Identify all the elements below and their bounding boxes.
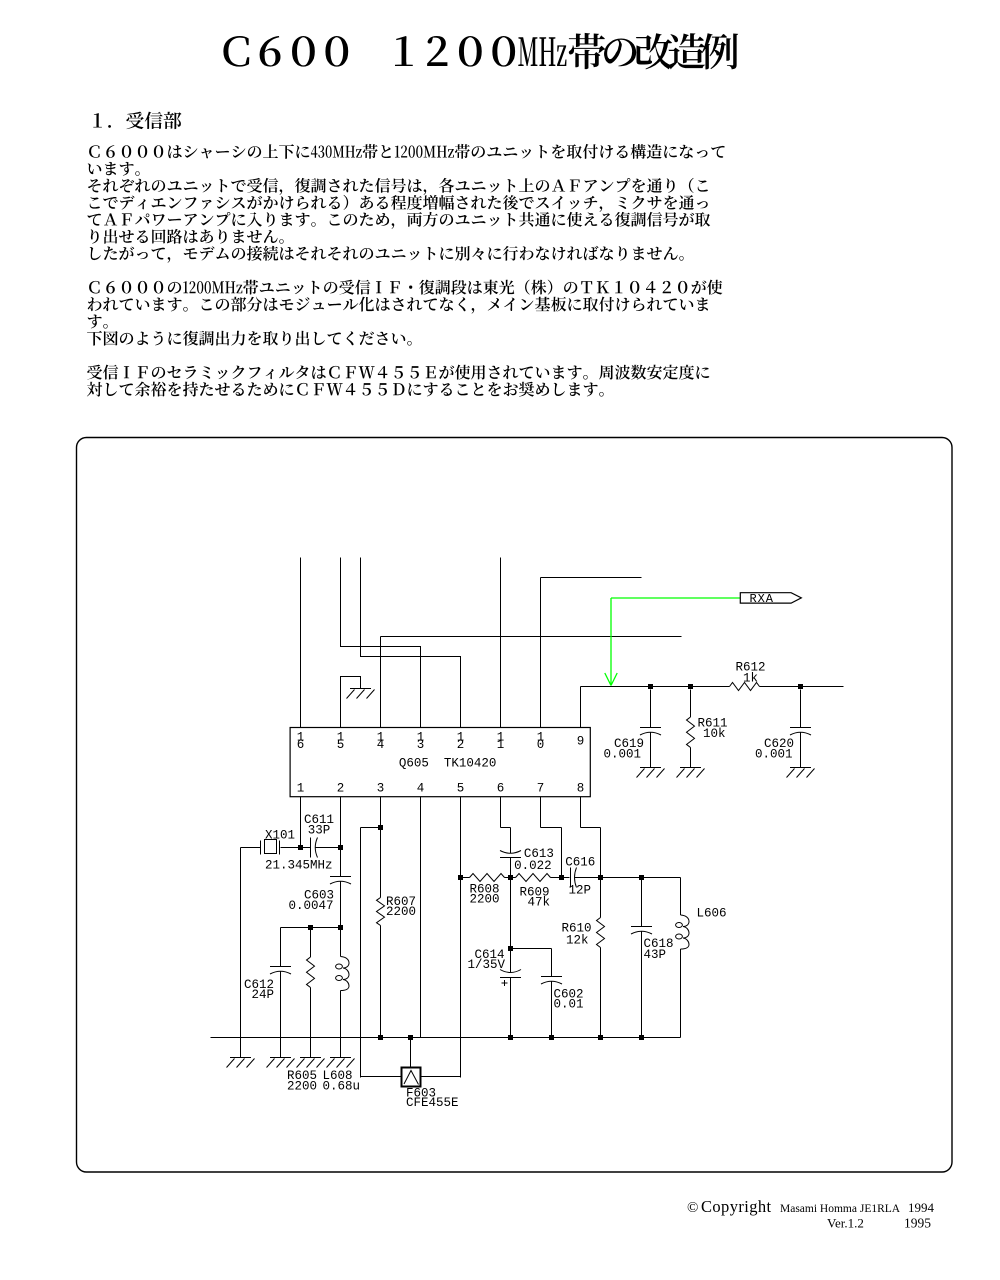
svg-text:2200: 2200 [470, 893, 500, 907]
svg-text:C616: C616 [565, 856, 595, 870]
svg-text:6: 6 [297, 738, 305, 752]
svg-text:2200: 2200 [287, 1080, 317, 1094]
svg-text:1: 1 [297, 782, 305, 796]
svg-text:33P: 33P [308, 824, 331, 838]
svg-text:4: 4 [377, 738, 385, 752]
svg-text:0.01: 0.01 [554, 998, 584, 1012]
svg-text:12P: 12P [569, 884, 592, 898]
svg-text:Copyright: Copyright [701, 1197, 772, 1216]
svg-text:0.0047: 0.0047 [289, 899, 334, 913]
svg-text:0.68u: 0.68u [323, 1080, 361, 1094]
svg-text:1k: 1k [743, 672, 758, 686]
svg-text:24P: 24P [252, 988, 275, 1002]
svg-text:2200: 2200 [386, 905, 416, 919]
svg-text:1/35V: 1/35V [468, 958, 506, 972]
svg-text:4: 4 [417, 782, 425, 796]
svg-text:2: 2 [337, 782, 345, 796]
svg-text:3: 3 [377, 782, 385, 796]
svg-text:7: 7 [537, 782, 545, 796]
svg-text:2: 2 [457, 738, 465, 752]
svg-text:21.345MHz: 21.345MHz [265, 859, 333, 873]
svg-text:10k: 10k [703, 727, 726, 741]
svg-text:Masami Homma JE1RLA: Masami Homma JE1RLA [780, 1203, 901, 1215]
svg-text:1994: 1994 [908, 1200, 935, 1215]
svg-text:0.001: 0.001 [755, 748, 793, 762]
svg-text:12k: 12k [566, 934, 589, 948]
svg-text:Ver.1.2: Ver.1.2 [827, 1216, 864, 1231]
svg-text:8: 8 [577, 782, 585, 796]
svg-text:3: 3 [417, 738, 425, 752]
svg-text:CFE455E: CFE455E [406, 1096, 459, 1110]
svg-text:0: 0 [537, 738, 545, 752]
svg-text:1995: 1995 [904, 1216, 931, 1231]
svg-text:9: 9 [577, 735, 585, 749]
svg-text:X101: X101 [265, 829, 295, 843]
svg-text:0.001: 0.001 [604, 748, 642, 762]
svg-text:6: 6 [497, 782, 505, 796]
svg-text:5: 5 [457, 782, 465, 796]
svg-text:1: 1 [497, 738, 505, 752]
svg-text:47k: 47k [528, 896, 551, 910]
svg-text:Q605 TK10420: Q605 TK10420 [399, 757, 497, 771]
svg-text:43P: 43P [644, 948, 667, 962]
svg-text:L606: L606 [697, 907, 727, 921]
svg-text:5: 5 [337, 738, 345, 752]
svg-text:©: © [687, 1200, 698, 1216]
svg-text:0.022: 0.022 [514, 859, 552, 873]
svg-text:RXA: RXA [750, 592, 774, 606]
